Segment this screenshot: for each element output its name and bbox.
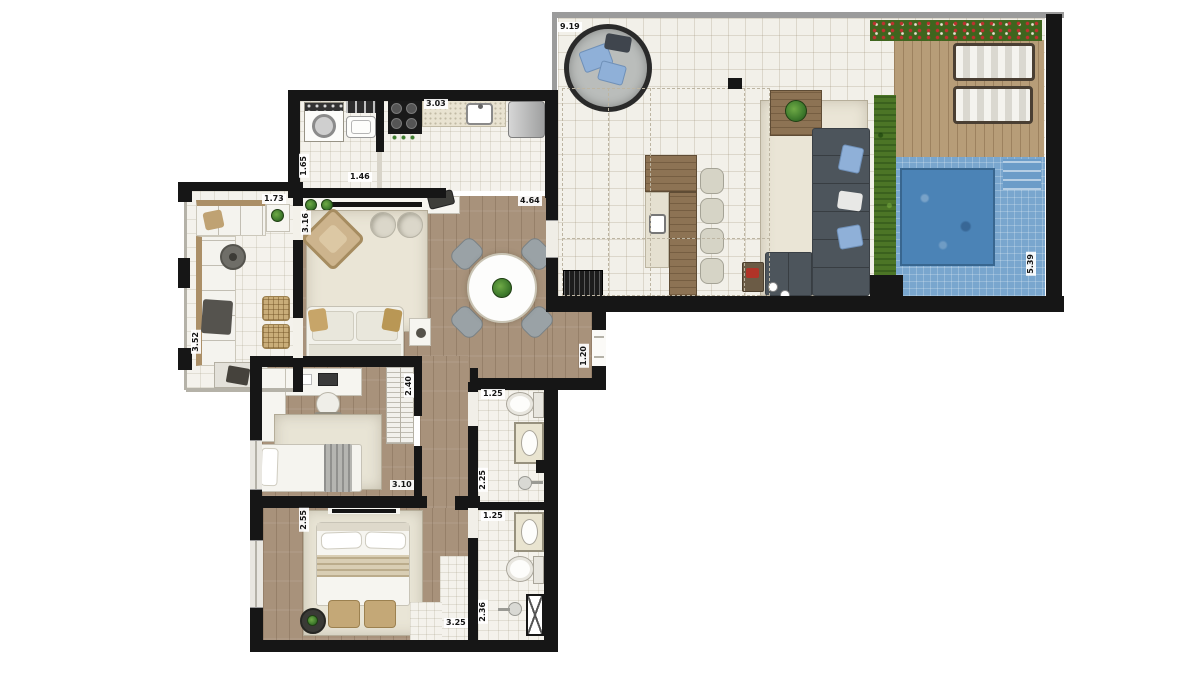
hedge <box>874 95 896 296</box>
wall <box>250 496 427 508</box>
dim-lounge-width: 1.73 <box>262 194 286 204</box>
wall <box>178 348 192 370</box>
wall <box>414 356 422 416</box>
dim-bath2-depth: 2.36 <box>478 600 488 624</box>
wall <box>544 382 558 652</box>
dim-living-width: 4.64 <box>518 196 542 206</box>
table-plant <box>492 278 512 298</box>
wall <box>546 296 1064 312</box>
door-opening <box>468 508 478 538</box>
wall <box>250 356 422 367</box>
dim-master-depth: 2.55 <box>299 508 309 532</box>
wall <box>1046 14 1062 312</box>
wall <box>250 640 468 652</box>
wall <box>288 90 558 101</box>
window-opening <box>546 220 558 258</box>
terrace-parapet-left <box>552 18 557 92</box>
dim-living-depth: 3.16 <box>301 211 311 235</box>
dim-laundry-depth: 1.65 <box>299 154 309 178</box>
dim-bedroom2-width: 3.10 <box>390 480 414 490</box>
door-opening <box>293 318 303 358</box>
duct-shaft <box>526 594 544 636</box>
wall <box>478 502 554 510</box>
dim-lounge-depth: 3.52 <box>191 330 201 354</box>
pergola-projection <box>562 88 770 296</box>
floor-plan: 9.19 5.39 3.03 1.46 1.65 <box>0 0 1200 675</box>
flower-bed <box>870 20 1042 41</box>
wall <box>470 368 478 382</box>
dim-bath1-depth: 2.25 <box>478 468 488 492</box>
wall <box>468 640 558 652</box>
window-opening <box>250 540 263 608</box>
wall <box>414 446 422 497</box>
dim-master-width: 3.25 <box>444 618 468 628</box>
tv <box>332 509 396 513</box>
window-line <box>186 388 298 392</box>
entry-door-opening <box>592 330 606 366</box>
wall <box>545 90 558 198</box>
wall <box>300 188 446 198</box>
door-opening <box>468 392 478 426</box>
wall <box>870 275 903 296</box>
dim-entry-opening: 1.20 <box>579 344 589 368</box>
pergola-line <box>650 88 651 296</box>
wall <box>536 460 549 473</box>
partition <box>377 152 382 190</box>
wall <box>186 182 303 191</box>
terrace-parapet-top <box>552 12 1064 18</box>
column <box>728 78 742 89</box>
dim-bath2-width: 1.25 <box>481 511 505 521</box>
dim-terrace-width: 9.19 <box>558 22 582 32</box>
wall <box>178 258 190 288</box>
window-opening <box>250 440 262 490</box>
dim-terrace-depth: 5.39 <box>1026 252 1036 276</box>
pergola-line <box>562 238 770 239</box>
dim-bedroom2-depth: 2.40 <box>404 374 414 398</box>
pergola-line <box>744 88 745 296</box>
wall <box>178 182 192 202</box>
dim-bath1-width: 1.25 <box>481 389 505 399</box>
pergola-line <box>608 88 609 296</box>
dim-kitchen-width: 3.03 <box>424 99 448 109</box>
wall <box>376 100 384 152</box>
dim-laundry-width: 1.46 <box>348 172 372 182</box>
